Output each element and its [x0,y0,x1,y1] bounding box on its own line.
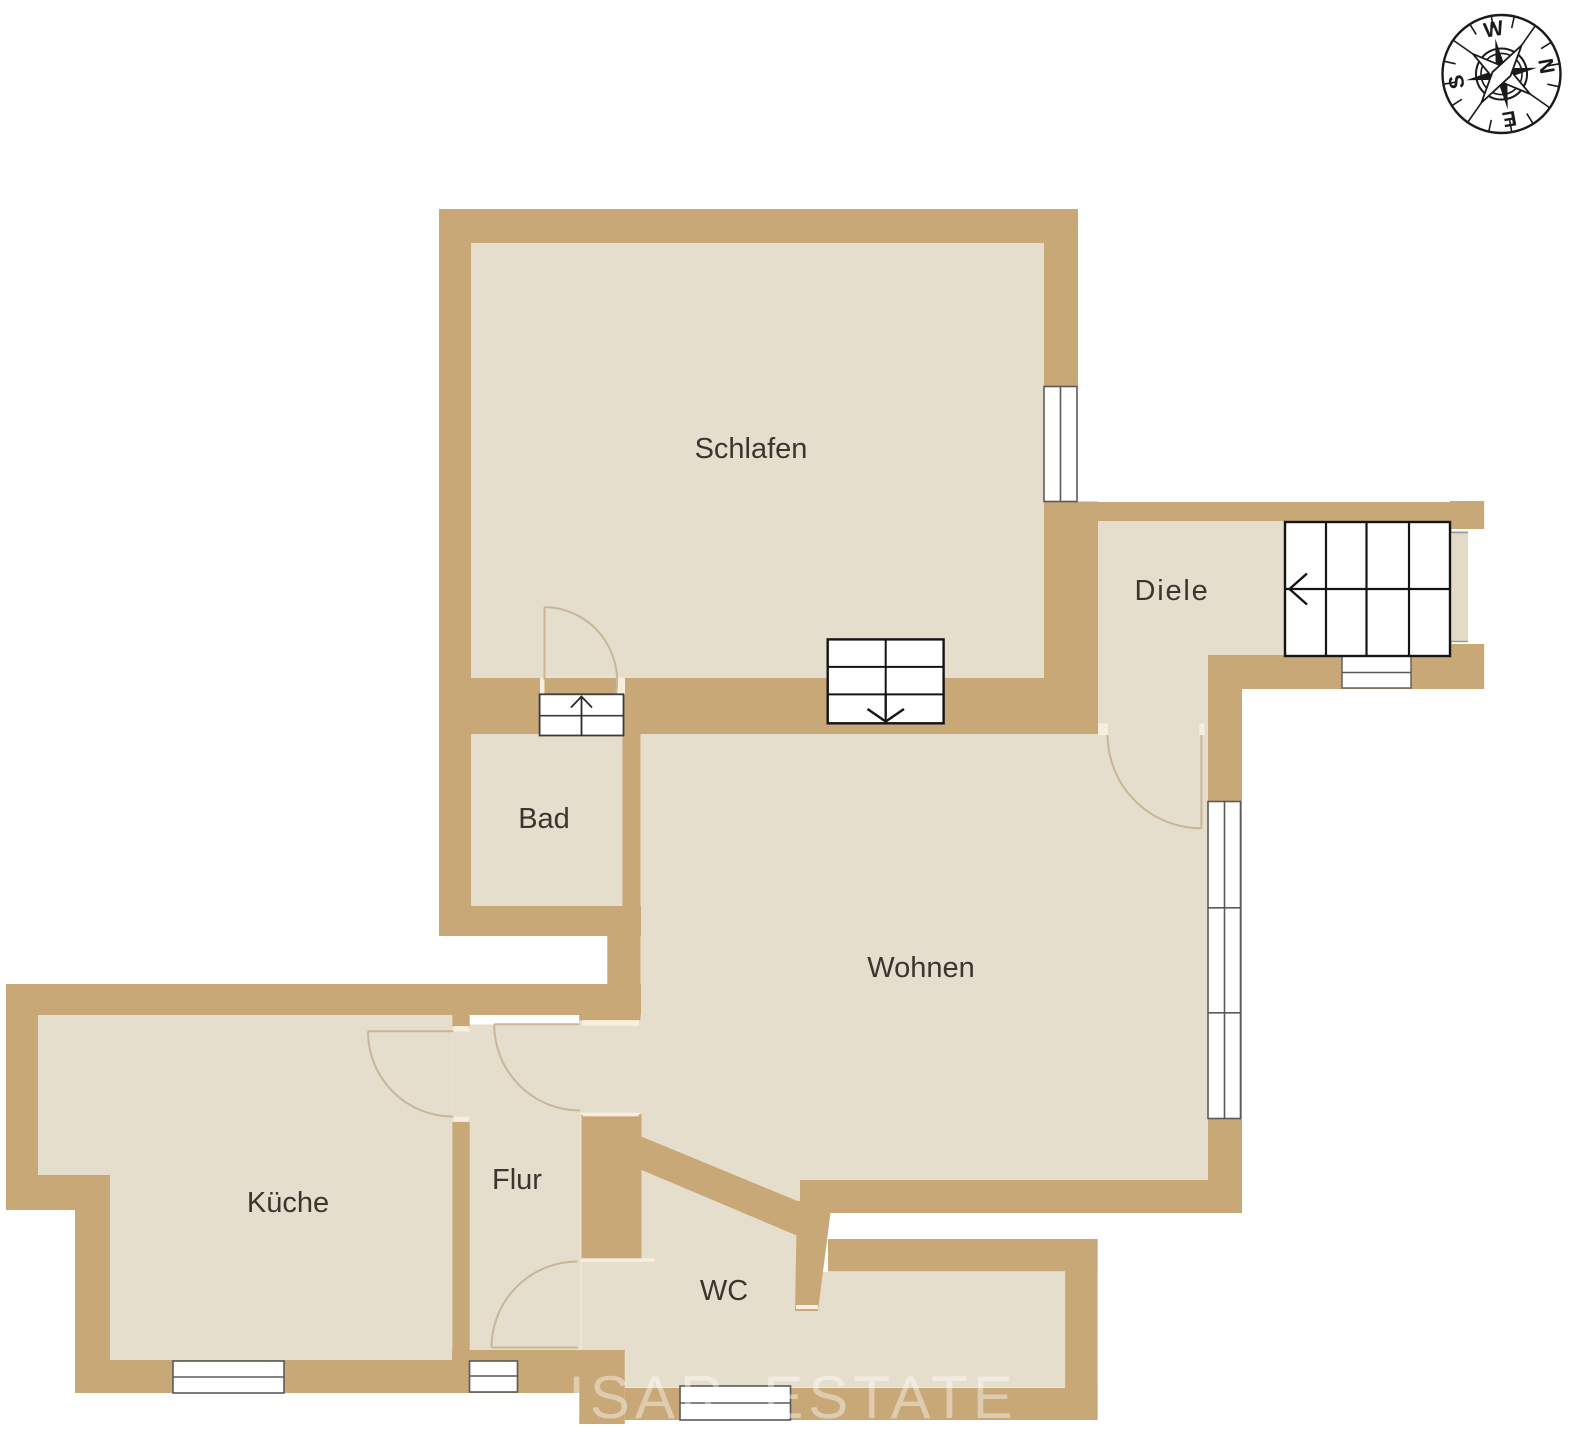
svg-text:W: W [1482,17,1506,43]
svg-text:WC: WC [700,1275,748,1307]
svg-text:Wohnen: Wohnen [867,952,975,984]
svg-text:Diele: Diele [1134,575,1209,607]
svg-text:Flur: Flur [492,1164,542,1196]
svg-text:Schlafen: Schlafen [695,433,808,465]
svg-text:Küche: Küche [247,1187,329,1219]
svg-text:Bad: Bad [518,803,570,835]
svg-text:ISAR ESTATE: ISAR ESTATE [568,1364,1018,1431]
